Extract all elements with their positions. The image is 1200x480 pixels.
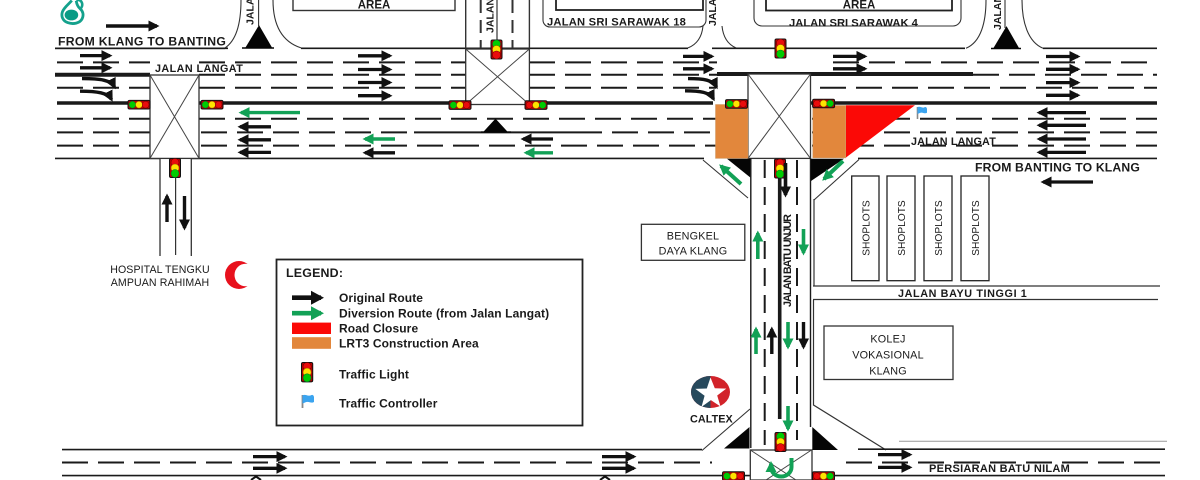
svg-text:FROM BANTING TO KLANG: FROM BANTING TO KLANG [975, 161, 1140, 175]
svg-text:AREA: AREA [843, 0, 876, 12]
svg-text:BENGKEL: BENGKEL [667, 231, 719, 243]
svg-text:Diversion Route (from Jalan La: Diversion Route (from Jalan Langat) [339, 307, 549, 321]
svg-text:JALAN BATU UNJUR: JALAN BATU UNJUR [782, 214, 794, 307]
svg-text:SHOPLOTS: SHOPLOTS [862, 200, 873, 256]
svg-text:JALAN SRI SARAWAK 4: JALAN SRI SARAWAK 4 [789, 18, 919, 30]
svg-text:SHOPLOTS: SHOPLOTS [934, 200, 945, 256]
svg-text:KOLEJ: KOLEJ [870, 334, 905, 346]
svg-text:LEGEND:: LEGEND: [286, 266, 343, 280]
svg-text:SHOPLOTS: SHOPLOTS [897, 200, 908, 256]
svg-text:AMPUAN RAHIMAH: AMPUAN RAHIMAH [111, 277, 210, 289]
svg-text:SHOPLOTS: SHOPLOTS [971, 200, 982, 256]
svg-text:Traffic Light: Traffic Light [339, 367, 409, 381]
svg-text:CALTEX: CALTEX [690, 414, 733, 426]
svg-text:PERSIARAN BATU NILAM: PERSIARAN BATU NILAM [929, 463, 1070, 475]
svg-text:JALAN SRI SARAWAK 18: JALAN SRI SARAWAK 18 [547, 17, 686, 29]
svg-text:JALAN 18: JALAN 18 [485, 0, 497, 33]
svg-text:JALAN BAYU TINGGI 1: JALAN BAYU TINGGI 1 [898, 288, 1027, 300]
svg-text:Road Closure: Road Closure [339, 321, 418, 335]
svg-text:VOKASIONAL: VOKASIONAL [852, 350, 924, 362]
svg-text:JALAN LANGAT: JALAN LANGAT [911, 136, 996, 148]
svg-text:LRT3 Construction Area: LRT3 Construction Area [339, 336, 479, 350]
svg-text:JALAN: JALAN [707, 0, 719, 26]
svg-text:FROM KLANG TO BANTING: FROM KLANG TO BANTING [58, 35, 226, 49]
svg-text:Original Route: Original Route [339, 291, 423, 305]
svg-text:Traffic Controller: Traffic Controller [339, 397, 438, 411]
svg-text:DAYA KLANG: DAYA KLANG [659, 246, 728, 258]
svg-text:JALAN: JALAN [245, 0, 257, 25]
svg-text:JALAN LANGAT: JALAN LANGAT [155, 63, 243, 75]
svg-text:AREA: AREA [358, 0, 391, 12]
svg-text:KLANG: KLANG [869, 366, 907, 378]
svg-text:JALAN: JALAN [992, 0, 1004, 30]
svg-text:HOSPITAL TENGKU: HOSPITAL TENGKU [110, 264, 210, 276]
